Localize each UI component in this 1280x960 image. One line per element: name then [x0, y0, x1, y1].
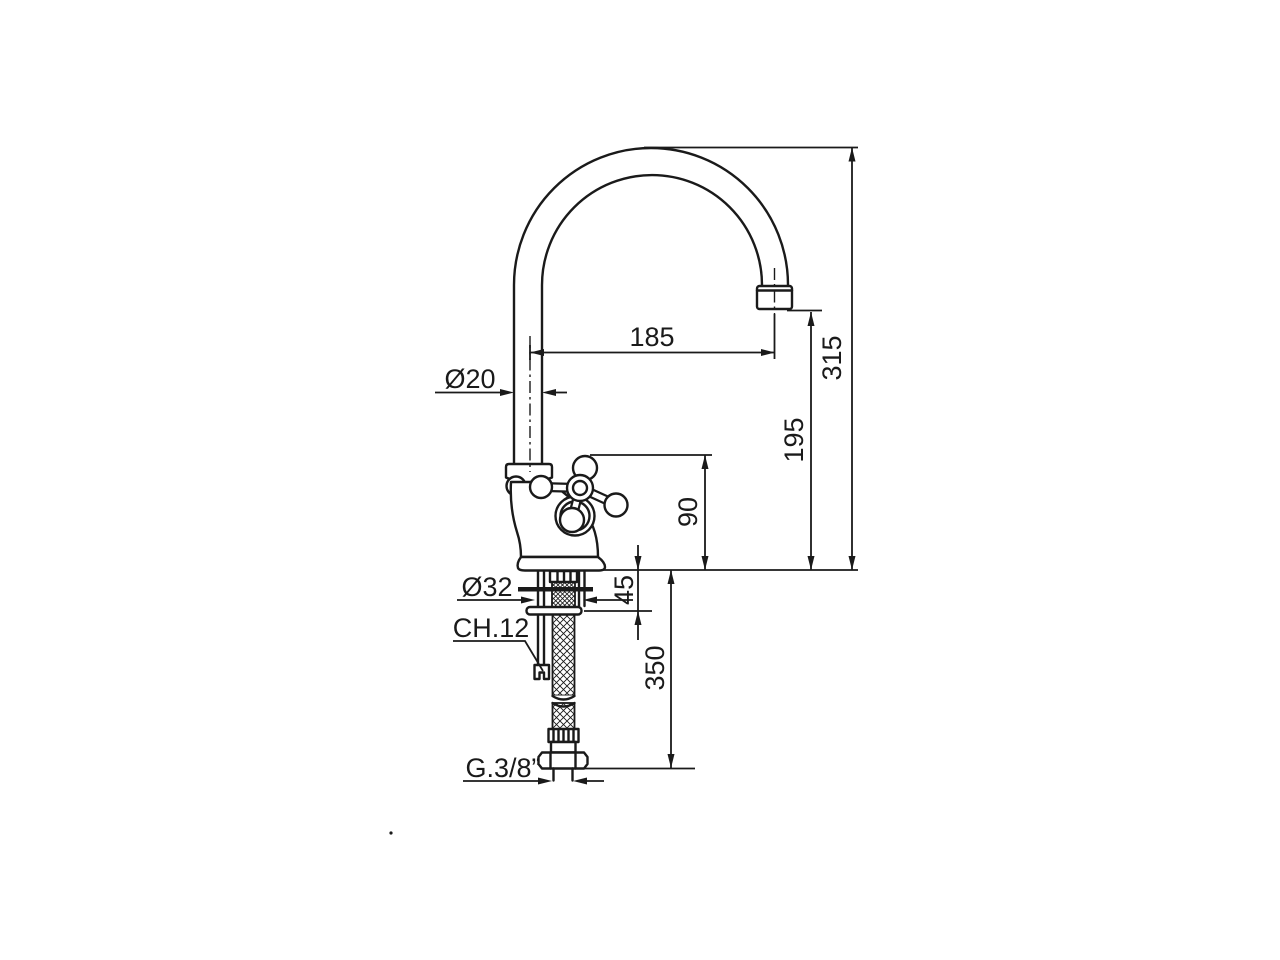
dim-deck-thickness: 45	[609, 545, 642, 640]
dim-overall-height-value: 315	[817, 335, 847, 380]
hose-ferrule	[549, 729, 579, 753]
dim-spout-diameter: Ø20	[435, 364, 567, 396]
base-skirt	[518, 557, 605, 571]
connection-stub	[554, 769, 573, 781]
spout-tube-inner	[542, 175, 762, 466]
supply-hose-upper	[553, 615, 575, 696]
reference-lines	[583, 148, 858, 769]
stud-foot	[535, 665, 550, 679]
label-hex-size: CH.12	[453, 613, 543, 671]
dim-body-height-value: 90	[673, 497, 703, 527]
artifact-dot	[389, 831, 392, 834]
spout-tube-outer	[514, 148, 788, 466]
mounting-flange	[518, 587, 593, 592]
supply-hose-lower	[553, 703, 575, 729]
handle-ball-bottom	[560, 508, 584, 532]
dim-overall-height: 315	[817, 148, 856, 571]
centerlines	[530, 268, 775, 472]
dim-outlet-height-value: 195	[779, 417, 809, 462]
dim-spout-reach-value: 185	[629, 322, 674, 352]
dim-spout-reach: 185	[530, 322, 775, 360]
drawing-sheet: 185 315 195 90 45 350	[0, 0, 1280, 960]
threaded-shank	[552, 582, 575, 607]
label-hex-size-value: CH.12	[453, 613, 530, 643]
label-thread-value: G.3/8”	[465, 753, 540, 783]
handle-ball-right	[605, 494, 628, 517]
handle-ball-left	[530, 476, 552, 498]
shank-spline-nut	[550, 571, 577, 582]
dim-outlet-height: 195	[779, 312, 815, 570]
dim-hose-length-value: 350	[640, 645, 670, 690]
mounting-washer	[527, 607, 582, 615]
connection-nut	[539, 753, 588, 769]
dim-shank-diameter-value: Ø32	[461, 572, 512, 602]
dim-body-height: 90	[673, 455, 709, 570]
technical-drawing-canvas: 185 315 195 90 45 350	[0, 0, 1280, 960]
dim-hose-length: 350	[640, 570, 675, 768]
dim-spout-diameter-value: Ø20	[444, 364, 495, 394]
handle-hub	[567, 475, 593, 501]
